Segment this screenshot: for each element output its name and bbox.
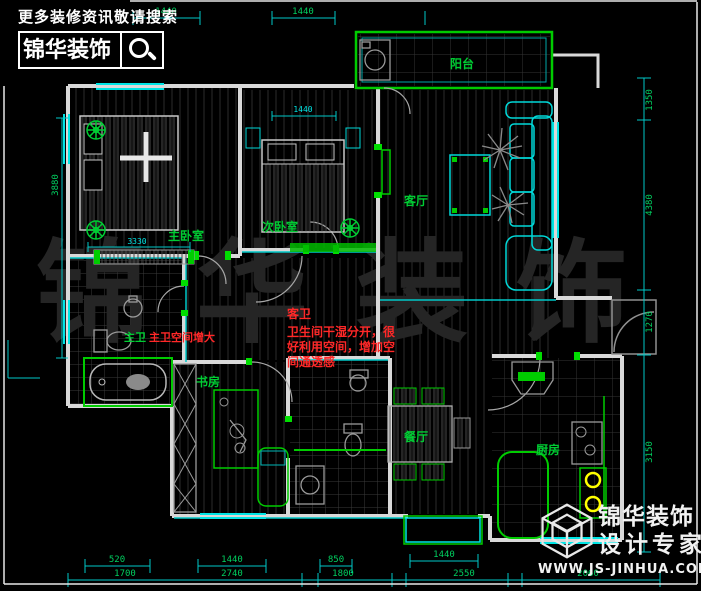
brand-search-box[interactable]: 锦华装饰 bbox=[18, 31, 164, 69]
dim-bi-2: 1440 bbox=[221, 555, 243, 565]
dim-right-2: 4380 bbox=[645, 194, 655, 216]
dim-bo-2: 2740 bbox=[221, 569, 243, 579]
label-dining-room: 餐厅 bbox=[404, 429, 428, 444]
search-icon bbox=[129, 38, 149, 58]
promo-header: 更多装修资讯敬请搜索 锦华装饰 bbox=[18, 6, 178, 69]
note-guest-bath-line1: 卫生间干湿分开，很 bbox=[287, 324, 395, 339]
search-icon-handle bbox=[147, 51, 157, 61]
footer-logo: 锦华装饰 设计专家 WWW.JS-JINHUA.COM bbox=[536, 502, 701, 588]
brand-name: 锦华装饰 bbox=[20, 33, 120, 67]
dim-right-3: 1270 bbox=[645, 311, 655, 333]
note-guest-bath-line3: 间通透感 bbox=[287, 354, 335, 369]
dim-bi-1: 520 bbox=[109, 555, 125, 565]
cube-logo-icon bbox=[538, 502, 596, 560]
dim-bi-3: 850 bbox=[328, 555, 344, 565]
logo-brand: 锦华装饰 bbox=[598, 503, 701, 531]
note-master-bath: 主卫空间增大 bbox=[149, 330, 215, 344]
dim-bo-3: 1800 bbox=[332, 569, 354, 579]
screenshot-root: 锦华装饰 bbox=[0, 0, 701, 591]
note-guest-bath-line2: 好利用空间，增加空 bbox=[286, 339, 395, 354]
note-guest-bath-title: 客卫 bbox=[286, 306, 311, 321]
promo-tagline: 更多装修资讯敬请搜索 bbox=[18, 6, 178, 29]
label-study: 书房 bbox=[196, 374, 220, 389]
bay-window bbox=[404, 516, 482, 544]
dim-bo-4: 2550 bbox=[453, 569, 475, 579]
dim-bo-1: 1700 bbox=[114, 569, 136, 579]
label-master-bath: 主卫 bbox=[124, 330, 146, 344]
logo-website: WWW.JS-JINHUA.COM bbox=[538, 562, 698, 578]
label-master-bedroom: 主卧室 bbox=[168, 228, 204, 243]
logo-text: 锦华装饰 设计专家 bbox=[598, 503, 701, 559]
dim-second-top: 1440 bbox=[293, 105, 312, 114]
dim-left-1: 3880 bbox=[51, 174, 61, 196]
label-living-room: 客厅 bbox=[403, 193, 428, 208]
label-balcony: 阳台 bbox=[450, 56, 474, 71]
dim-bi-4: 1440 bbox=[433, 550, 455, 560]
label-second-bedroom: 次卧室 bbox=[262, 219, 298, 234]
label-kitchen: 厨房 bbox=[536, 442, 560, 457]
dim-master-width: 3330 bbox=[127, 237, 146, 246]
dim-top-2: 1440 bbox=[292, 7, 314, 17]
dim-right-4: 3150 bbox=[645, 441, 655, 463]
dim-right-1: 1350 bbox=[645, 89, 655, 111]
logo-slogan: 设计专家 bbox=[598, 531, 701, 559]
search-button[interactable] bbox=[120, 33, 162, 67]
